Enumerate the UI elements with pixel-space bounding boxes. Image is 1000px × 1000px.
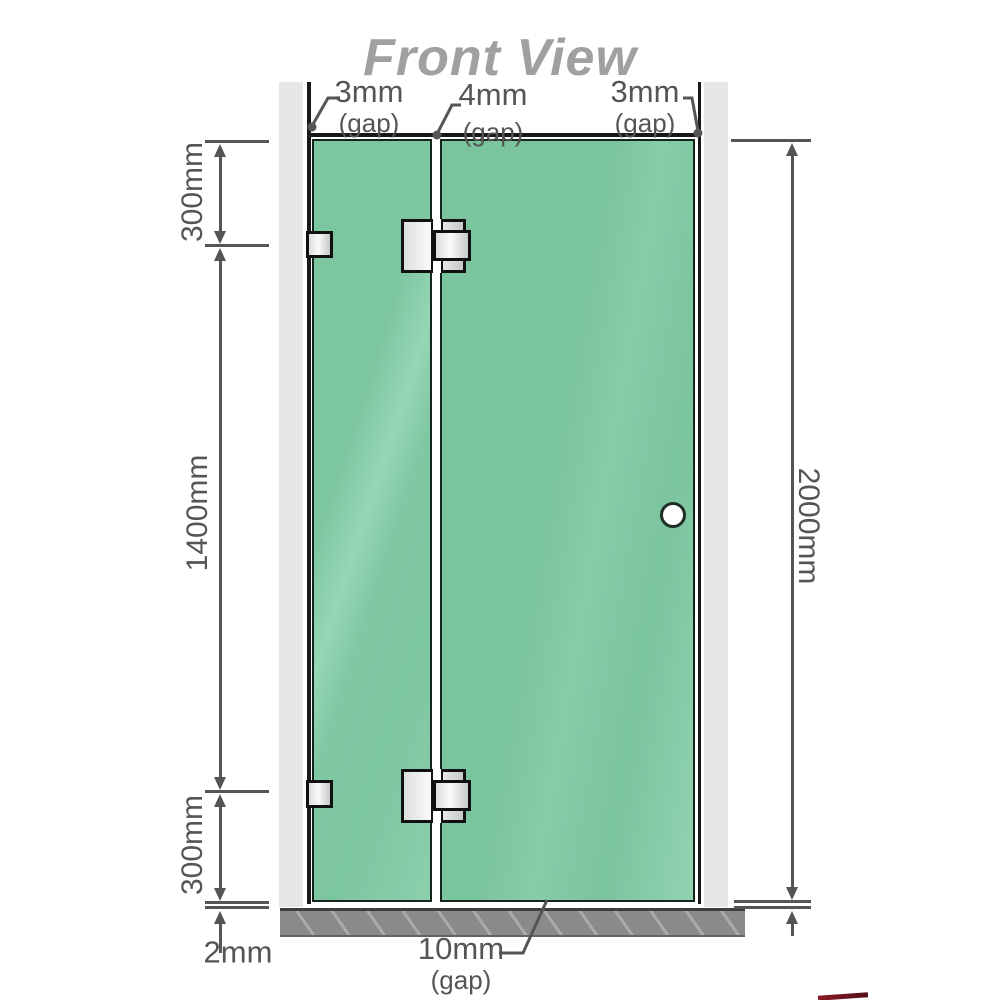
top-wall-bracket — [306, 231, 333, 258]
dim-tick — [205, 906, 269, 909]
arrowhead-down — [214, 888, 226, 901]
right-wall — [704, 82, 728, 907]
dim-tick — [205, 901, 269, 904]
arrowhead-down — [214, 231, 226, 244]
dim-tick — [734, 906, 811, 909]
bottom-hinge-clamp — [433, 780, 471, 811]
top-hinge-clamp — [433, 230, 471, 261]
dim-tick — [734, 900, 811, 903]
shower-screen-front-view-diagram: Front View 300mm 1400mm 300mm — [0, 0, 1000, 1000]
dim-label-300-bottom: 300mm — [176, 795, 210, 895]
floor-base — [280, 908, 745, 937]
gap-label-top-right: 3mm (gap) — [611, 76, 680, 136]
dim-tick — [205, 790, 269, 793]
gap-label-bottom: 10mm (gap) — [418, 933, 504, 993]
dim-label-2mm: 2mm — [204, 937, 273, 968]
gap-label-top-left: 3mm (gap) — [335, 76, 404, 136]
dim-tick — [205, 140, 269, 143]
dim-label-2000: 2000mm — [791, 468, 825, 585]
dim-label-1400: 1400mm — [181, 455, 215, 572]
right-frame-line — [698, 82, 702, 904]
door-knob — [660, 502, 686, 528]
logo-fragment — [818, 992, 868, 1000]
dim-label-300-top: 300mm — [176, 142, 210, 242]
arrowhead-down — [786, 887, 798, 900]
left-wall — [279, 82, 303, 907]
dim-line-300-top — [219, 152, 222, 236]
floor-hatch-pattern — [280, 911, 745, 935]
bottom-wall-bracket — [306, 780, 333, 808]
arrowhead-down — [214, 777, 226, 790]
glass-door-panel — [440, 139, 695, 902]
dim-tick — [205, 244, 269, 247]
gap-label-top-center: 4mm (gap) — [459, 79, 528, 145]
dim-line-1400 — [219, 256, 222, 784]
dim-line-300-bottom — [219, 802, 222, 889]
dim-tick — [731, 139, 811, 142]
dim-line-2mm-right — [791, 920, 794, 936]
